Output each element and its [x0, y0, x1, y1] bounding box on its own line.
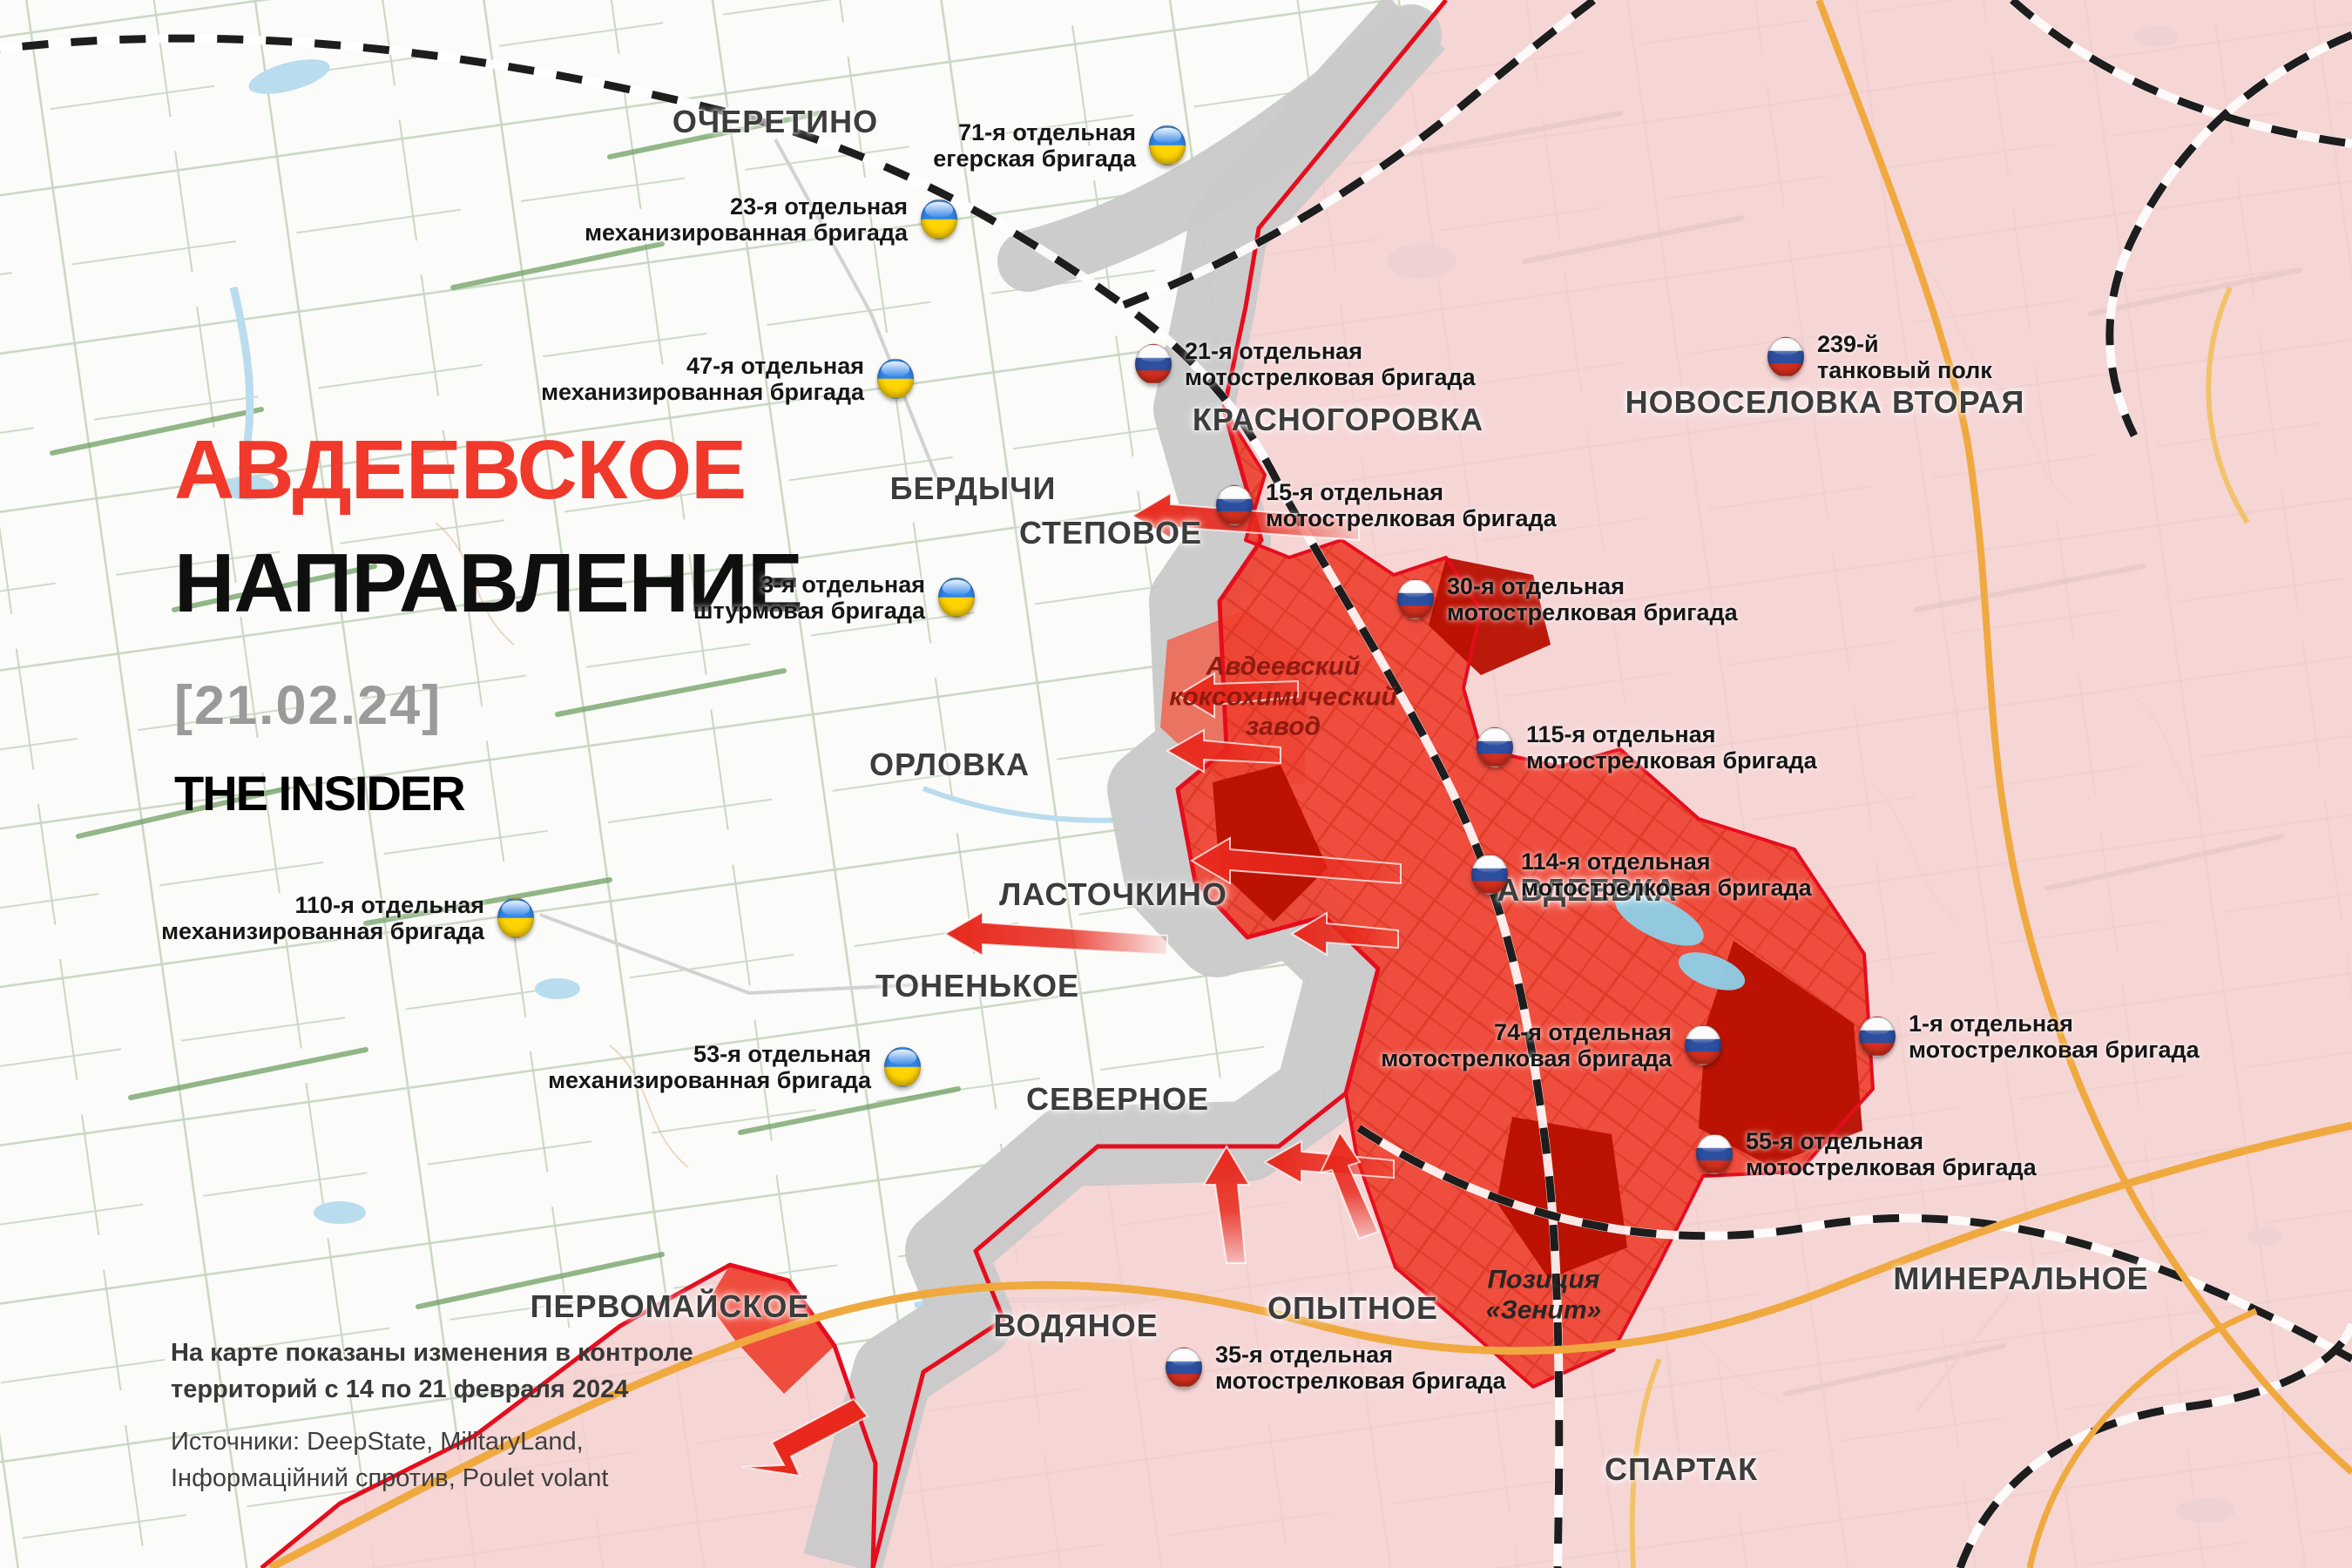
town-novoselivka-druha: НОВОСЕЛОВКА ВТОРАЯ — [1625, 384, 2025, 421]
poi-coke-plant-line3: завод — [1169, 712, 1397, 742]
ru-flag-icon — [1685, 1025, 1721, 1065]
town-berdychi: БЕРДЫЧИ — [890, 470, 1057, 507]
map-date: [21.02.24] — [174, 674, 802, 737]
map-title-line1: АВДЕЕВСКОЕ — [174, 429, 802, 512]
unit-71st-jaeger-brigade: 71-я отдельнаяегерская бригада — [933, 119, 1186, 172]
ru-flag-icon — [1216, 485, 1253, 525]
unit-21st-motor-rifle-brigade: 21-я отдельнаямотострелковая бригада — [1135, 338, 1476, 390]
ru-flag-icon — [1166, 1348, 1202, 1388]
poi-coke-plant-line2: коксохимический — [1169, 682, 1397, 713]
poi-zenit-line1: Позиция — [1486, 1266, 1601, 1296]
ua-flag-icon — [938, 578, 975, 618]
town-opytne: ОПЫТНОЕ — [1267, 1290, 1438, 1327]
title-block: АВДЕЕВСКОЕ НАПРАВЛЕНИЕ [21.02.24] THE IN… — [174, 429, 802, 821]
ru-flag-icon — [1477, 727, 1513, 767]
the-insider-logo: THE INSIDER — [174, 765, 802, 821]
unit-1st-motor-rifle-brigade: 1-я отдельнаямотострелковая бригада — [1859, 1010, 2200, 1063]
town-mineralne: МИНЕРАЛЬНОЕ — [1893, 1260, 2148, 1297]
unit-23rd-mechanized-brigade: 23-я отдельнаямеханизированная бригада — [585, 193, 957, 246]
poi-zenit-line2: «Зенит» — [1486, 1295, 1601, 1326]
town-pervomaiske: ПЕРВОМАЙСКОЕ — [531, 1288, 810, 1325]
unit-55th-motor-rifle-brigade: 55-я отдельнаямотострелковая бригада — [1696, 1128, 2037, 1180]
town-orlivka: ОРЛОВКА — [869, 747, 1030, 783]
poi-zenit-position: Позиция «Зенит» — [1486, 1266, 1601, 1326]
avdiivka-direction-map: АВДЕЕВСКОЕ НАПРАВЛЕНИЕ [21.02.24] THE IN… — [0, 0, 2352, 1568]
ru-flag-icon — [1696, 1134, 1733, 1174]
unit-239th-tank-regiment: 239-йтанковый полк — [1767, 331, 1992, 383]
town-tonenke: ТОНЕНЬКОЕ — [875, 968, 1079, 1004]
poi-coke-plant-line1: Авдеевский — [1169, 652, 1397, 682]
ru-flag-icon — [1135, 344, 1172, 384]
town-krasnohorivka: КРАСНОГОРОВКА — [1193, 402, 1484, 438]
unit-35th-motor-rifle-brigade: 35-я отдельнаямотострелковая бригада — [1166, 1342, 1506, 1394]
ru-flag-icon — [1471, 855, 1508, 895]
unit-74th-motor-rifle-brigade: 74-я отдельнаямотострелковая бригада — [1381, 1019, 1721, 1071]
unit-30th-motor-rifle-brigade: 30-я отдельнаямотострелковая бригада — [1397, 573, 1738, 625]
footer-note: На карте показаны изменения в контроле т… — [171, 1335, 693, 1408]
ua-flag-icon — [1149, 125, 1186, 166]
town-ocheretino: ОЧЕРЕТИНО — [672, 104, 878, 140]
unit-15th-motor-rifle-brigade: 15-я отдельнаямотострелковая бригада — [1216, 479, 1557, 531]
ru-flag-icon — [1859, 1017, 1896, 1057]
ru-flag-icon — [1767, 337, 1804, 377]
unit-47th-mechanized-brigade: 47-я отдельнаямеханизированная бригада — [541, 353, 914, 405]
ua-flag-icon — [497, 898, 534, 938]
footer-notes: На карте показаны изменения в контроле т… — [171, 1335, 693, 1512]
unit-53rd-mechanized-brigade: 53-я отдельнаямеханизированная бригада — [548, 1041, 921, 1093]
footer-sources: Источники: DeepState, MilitaryLand, Інфо… — [171, 1423, 693, 1497]
town-severne: СЕВЕРНОЕ — [1026, 1081, 1209, 1118]
ua-flag-icon — [877, 359, 914, 399]
town-stepove: СТЕПОВОЕ — [1019, 515, 1202, 551]
unit-114th-motor-rifle-brigade: 114-я отдельнаямотострелковая бригада — [1471, 848, 1812, 901]
town-lastochkyne: ЛАСТОЧКИНО — [999, 876, 1227, 913]
town-spartak: СПАРТАК — [1605, 1451, 1758, 1488]
ua-flag-icon — [884, 1047, 921, 1087]
unit-3rd-assault-brigade: 3-я отдельнаяштурмовая бригада — [693, 571, 975, 624]
town-vodiane: ВОДЯНОЕ — [993, 1308, 1158, 1344]
unit-115th-motor-rifle-brigade: 115-я отдельнаямотострелковая бригада — [1477, 721, 1817, 774]
poi-coke-plant: Авдеевский коксохимический завод — [1169, 652, 1397, 742]
ua-flag-icon — [921, 199, 957, 240]
ru-flag-icon — [1397, 579, 1434, 619]
unit-110th-mechanized-brigade: 110-я отдельнаямеханизированная бригада — [161, 892, 534, 944]
